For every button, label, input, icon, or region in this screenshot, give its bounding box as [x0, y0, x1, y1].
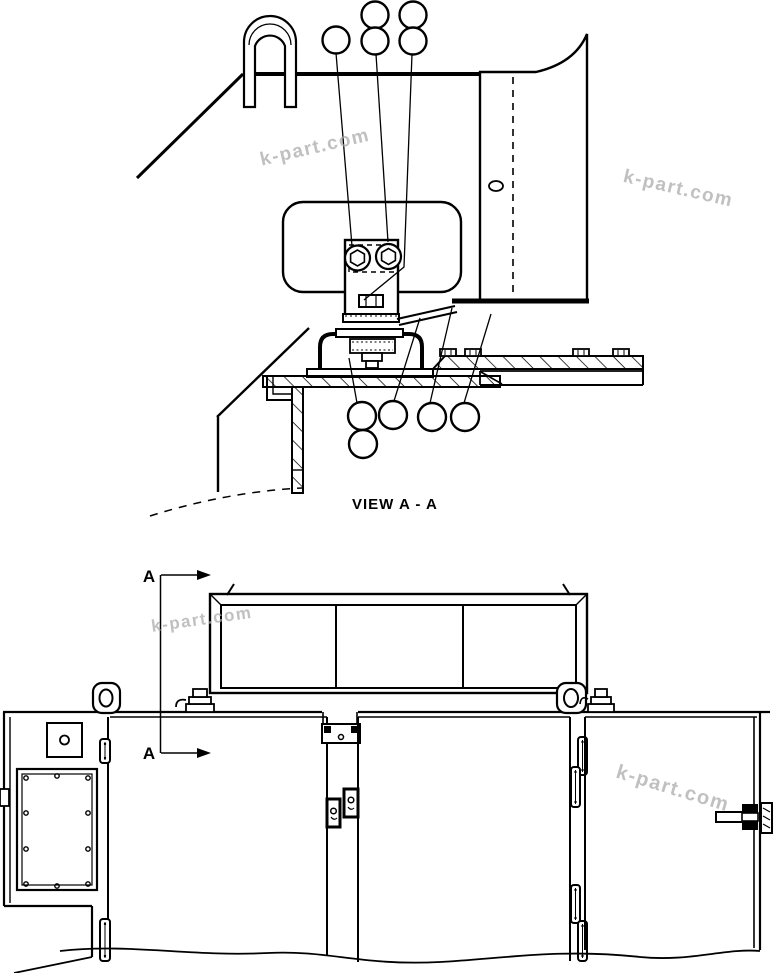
callout-balloon [379, 401, 407, 429]
callout-balloon [348, 402, 376, 430]
rail-bolts [440, 349, 629, 356]
callout-balloons-bottom [348, 401, 479, 458]
section-marker-a-top: A [143, 567, 155, 587]
callout-balloons-top [323, 2, 427, 55]
rubber-block [350, 339, 395, 353]
washer-plate [343, 314, 399, 322]
left-end-cabinet [0, 712, 97, 973]
stud [362, 353, 382, 361]
nut [359, 295, 383, 307]
roof-frame [210, 584, 587, 693]
lifting-eye-left [93, 683, 120, 713]
u-bolt [244, 16, 296, 107]
lifting-lug-right [557, 683, 614, 713]
frame-mount-left [176, 689, 214, 712]
door-latch [327, 799, 340, 827]
hinge [571, 885, 580, 923]
line-art [0, 0, 773, 973]
upper-plate [336, 329, 403, 337]
break-line [150, 488, 302, 516]
callout-balloon [451, 403, 479, 431]
hinge [571, 767, 580, 807]
left-door [100, 717, 327, 961]
callout-balloon [349, 430, 377, 458]
callout-balloon [323, 27, 350, 54]
technical-drawing-page: VIEW A - A A A k-part.com k-part.com k-p… [0, 0, 773, 973]
small-plate [47, 723, 82, 757]
section-cut-line [161, 570, 212, 758]
hinge [100, 739, 110, 763]
cabinet-top-edge [3, 712, 770, 724]
callout-balloon [362, 2, 389, 29]
side-hinge-tab [0, 789, 9, 806]
access-panel [17, 769, 97, 890]
vertical-channel [292, 387, 303, 493]
arrowhead [197, 748, 211, 758]
callout-balloon [418, 403, 446, 431]
section-marker-a-bottom: A [143, 744, 155, 764]
hinge [100, 919, 110, 961]
right-door [585, 712, 772, 950]
support-diagonal [397, 306, 455, 319]
callout-balloon [362, 28, 389, 55]
left-diagonal-member [137, 74, 243, 178]
arrowhead [197, 570, 211, 580]
section-view-a-a [137, 2, 643, 517]
middle-door [358, 717, 570, 962]
bottom-break-line [60, 948, 760, 962]
view-caption: VIEW A - A [352, 496, 438, 513]
callout-balloon [400, 2, 427, 29]
door-latch [344, 789, 358, 817]
callout-balloon [400, 28, 427, 55]
